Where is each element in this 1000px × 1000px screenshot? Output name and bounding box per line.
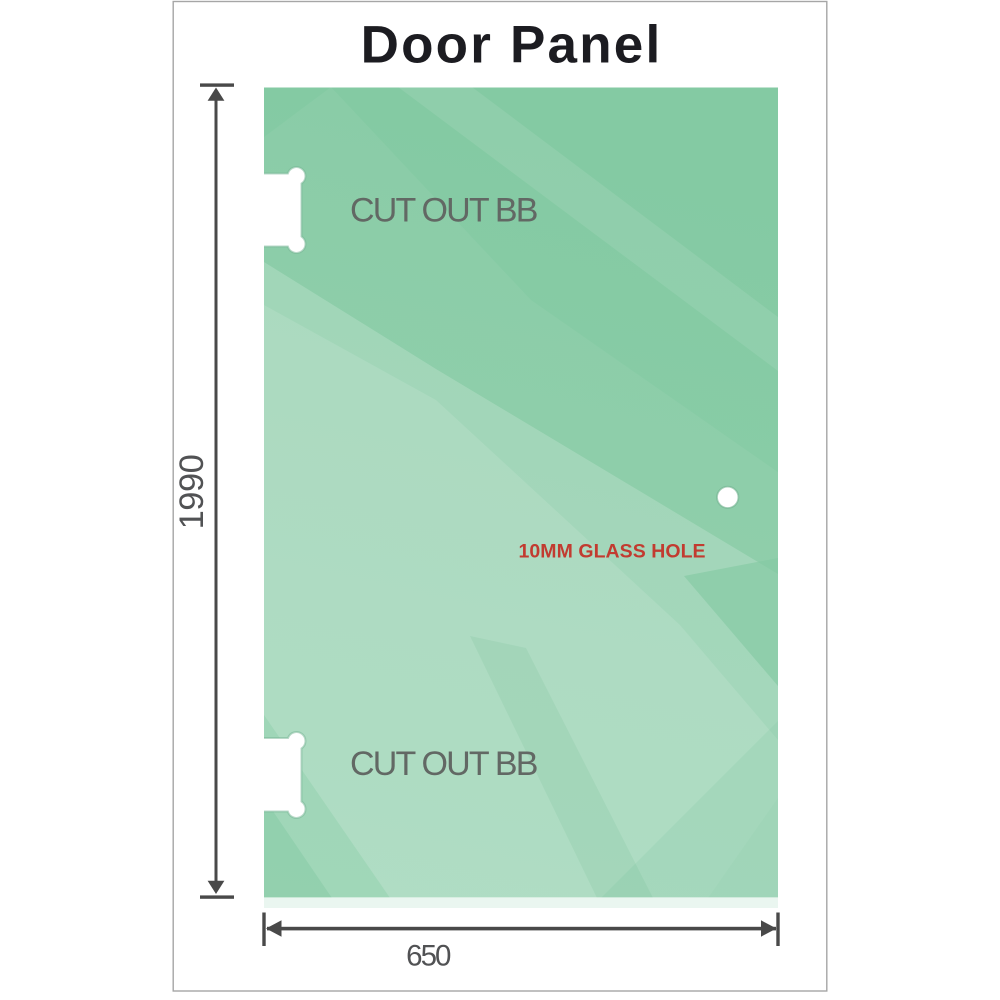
svg-text:650: 650 (406, 940, 451, 973)
svg-text:10MM GLASS HOLE: 10MM GLASS HOLE (519, 541, 706, 563)
svg-text:Door Panel: Door Panel (361, 16, 663, 75)
svg-text:CUT OUT BB: CUT OUT BB (350, 191, 537, 229)
svg-text:CUT OUT BB: CUT OUT BB (350, 745, 537, 783)
svg-text:1990: 1990 (173, 455, 211, 530)
